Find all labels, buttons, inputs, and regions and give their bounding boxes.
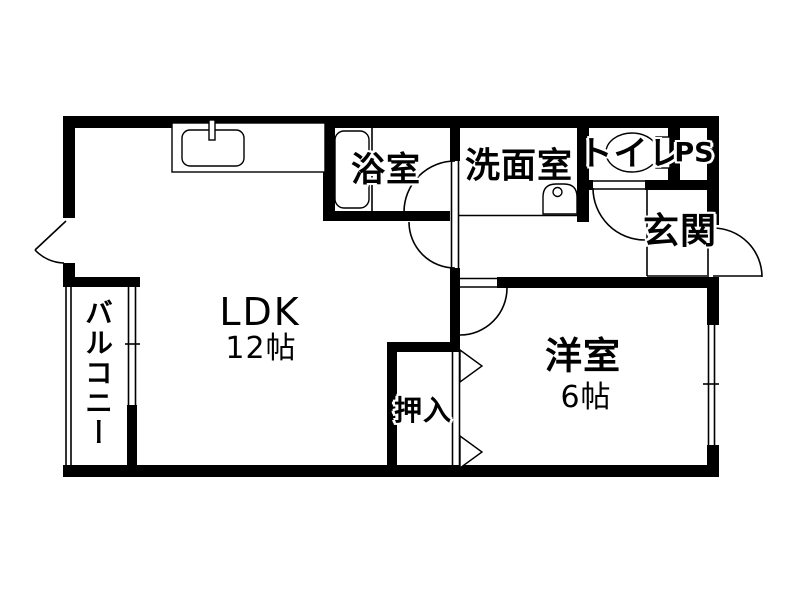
- wall-mid-upper: [450, 116, 460, 161]
- ldk-west-door-arc: [35, 250, 64, 263]
- floor-plan: 浴室 洗面室 トイレ PS 玄関 LDK 12帖 洋室 6帖 押入 バルコニー: [0, 0, 800, 600]
- ldk-label: LDK: [219, 293, 300, 331]
- washroom-label: 洗面室: [465, 150, 573, 185]
- wall-left-upper: [63, 116, 75, 218]
- wall-top: [63, 116, 719, 128]
- ldk-west-door-leaf: [35, 221, 66, 250]
- closet-label: 押入: [394, 397, 452, 425]
- closet-slider-arrow-top: [460, 350, 482, 382]
- closet-slider-arrow-bottom: [460, 436, 482, 468]
- entrance-door-arc: [713, 228, 762, 277]
- wall-mid-lower: [450, 268, 460, 352]
- wall-closet-top: [387, 342, 460, 352]
- wall-ldk-southwest: [63, 277, 140, 287]
- wall-right-lower: [707, 445, 719, 477]
- bath-label: 浴室: [351, 153, 421, 187]
- ldk-size-label: 12帖: [225, 334, 296, 364]
- western-room-size-label: 6帖: [560, 383, 611, 413]
- wall-bottom: [63, 465, 719, 477]
- ps-label: PS: [674, 140, 713, 167]
- wall-balcony-right: [127, 405, 137, 465]
- wall-right-upper: [707, 116, 719, 225]
- wall-toilet-bottom-right: [645, 180, 719, 190]
- washbasin-drain: [553, 188, 562, 197]
- wall-western-top: [497, 277, 719, 288]
- balcony-label: バルコニー: [83, 298, 111, 448]
- toilet-label: トイレ: [579, 137, 684, 171]
- western-room-label: 洋室: [545, 338, 621, 375]
- floor-plan-drawing: [0, 0, 800, 600]
- wall-toilet-bottom-left: [577, 180, 593, 190]
- entrance-label: 玄関: [643, 214, 717, 250]
- kitchen-faucet: [209, 120, 215, 140]
- toilet-door-arc: [593, 188, 645, 240]
- western-door-arc: [460, 288, 507, 335]
- ldk-hall-door-arc: [409, 222, 455, 268]
- wall-bath-bottom: [323, 211, 450, 221]
